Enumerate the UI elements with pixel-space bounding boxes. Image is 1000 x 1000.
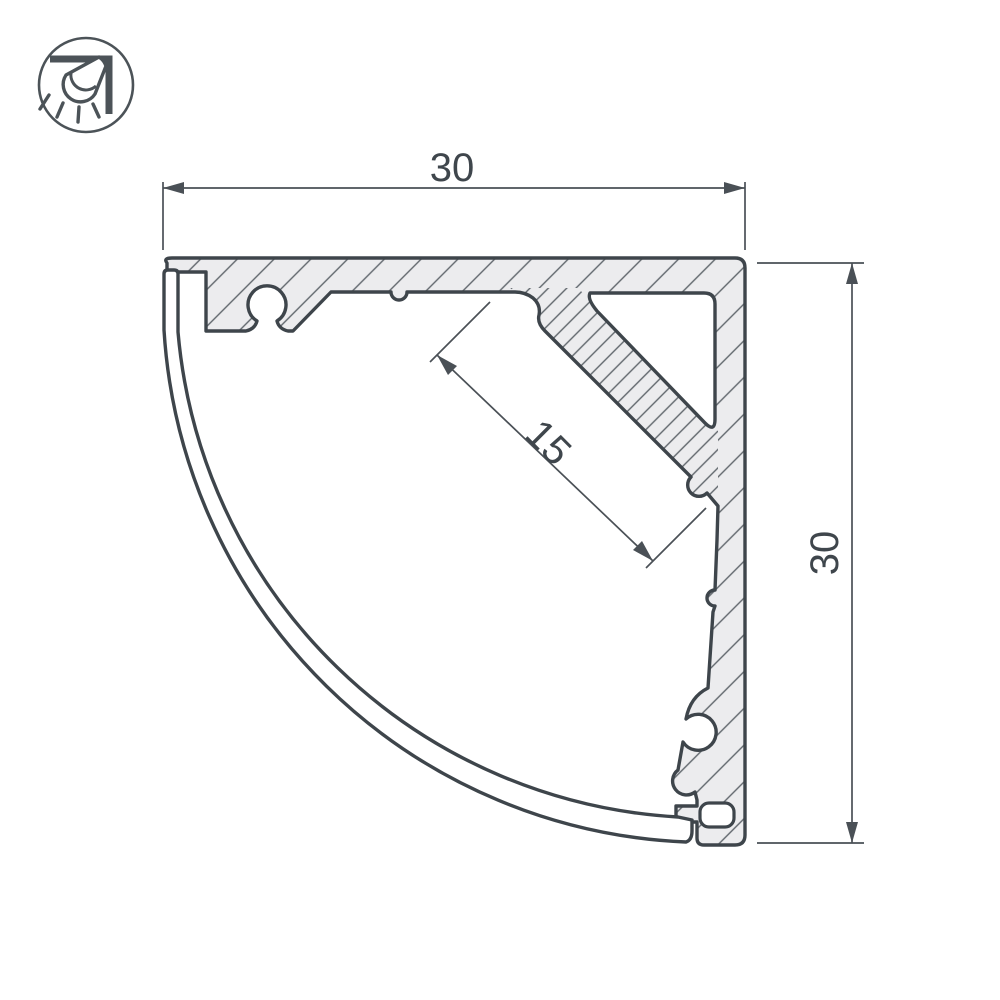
arrowhead (724, 182, 745, 194)
spotlight-glyph (63, 57, 106, 102)
profile-cross-section-drawing: 30 30 15 (0, 0, 1000, 1000)
right-height-label: 30 (803, 531, 847, 576)
arrowhead (846, 263, 858, 284)
mounting-slot (700, 803, 734, 827)
top-width-dimension (163, 182, 745, 250)
page: 30 30 15 (0, 0, 1000, 1000)
led-shelf-width-label: 15 (517, 412, 580, 475)
arrowhead (846, 822, 858, 843)
extension-line (646, 508, 706, 568)
arrowhead (163, 182, 184, 194)
profile-body (164, 258, 745, 845)
top-width-label: 30 (430, 146, 475, 190)
corner-light-icon (39, 38, 133, 132)
extension-line (430, 302, 490, 362)
